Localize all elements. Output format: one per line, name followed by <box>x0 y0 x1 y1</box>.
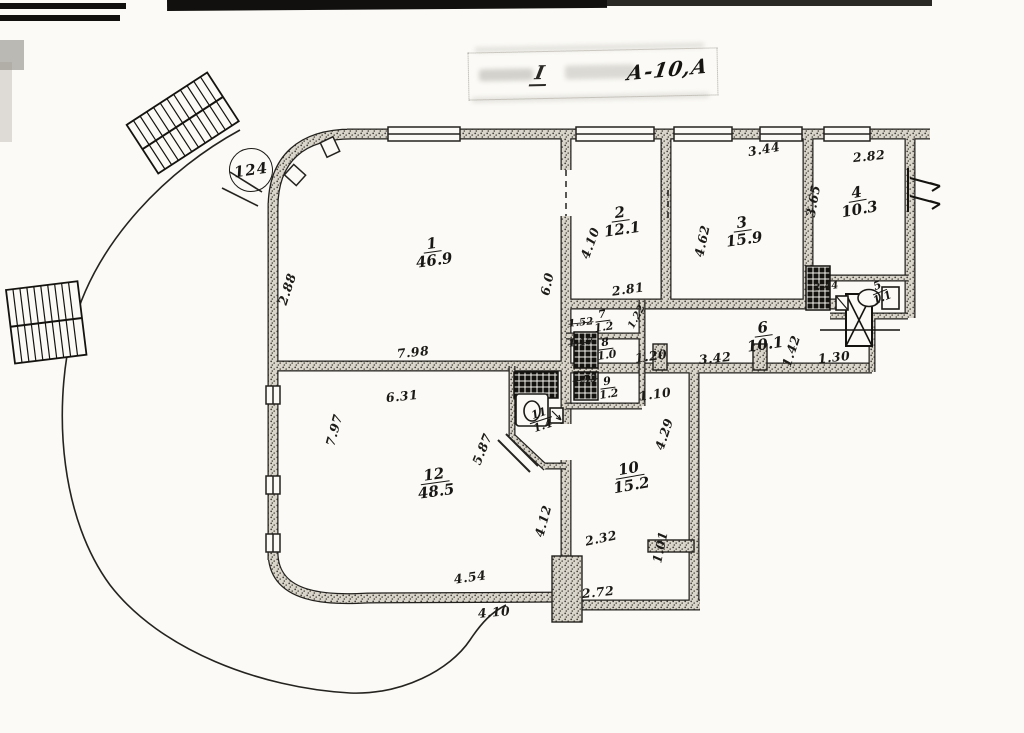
stamp-smudge <box>565 64 635 79</box>
room-label: 212.1 <box>601 202 642 240</box>
room-area: 1.2 <box>594 320 615 334</box>
staircase-top-left <box>127 73 239 174</box>
room-label: 91.2 <box>597 374 619 401</box>
room-label: 1015.2 <box>609 457 651 496</box>
dimension-label: 4.10 <box>477 603 511 621</box>
site-boundary-line <box>62 130 506 693</box>
room-label: 315.9 <box>723 212 764 250</box>
room-label: 71.2 <box>592 307 614 334</box>
scanned-floor-plan-page: I А-10,А 124 146.9212.1315.9410.351.1610… <box>0 0 1024 733</box>
staircase-bottom-left <box>6 281 86 363</box>
registration-stamp: I А-10,А <box>468 47 719 100</box>
room-label: 610.1 <box>744 317 785 355</box>
room-area: 1.2 <box>599 387 620 401</box>
room-area: 1.0 <box>597 348 618 362</box>
stamp-plan-code: А-10,А <box>625 54 710 86</box>
room-label: 146.9 <box>413 233 454 271</box>
floor-plan-drawing <box>0 0 1024 733</box>
stamp-smudge <box>479 68 533 81</box>
stamp-floor-mark: I <box>529 62 550 86</box>
room-label: 1248.5 <box>415 464 456 502</box>
room-label: 81.0 <box>595 335 617 362</box>
room-label: 410.3 <box>837 181 879 220</box>
